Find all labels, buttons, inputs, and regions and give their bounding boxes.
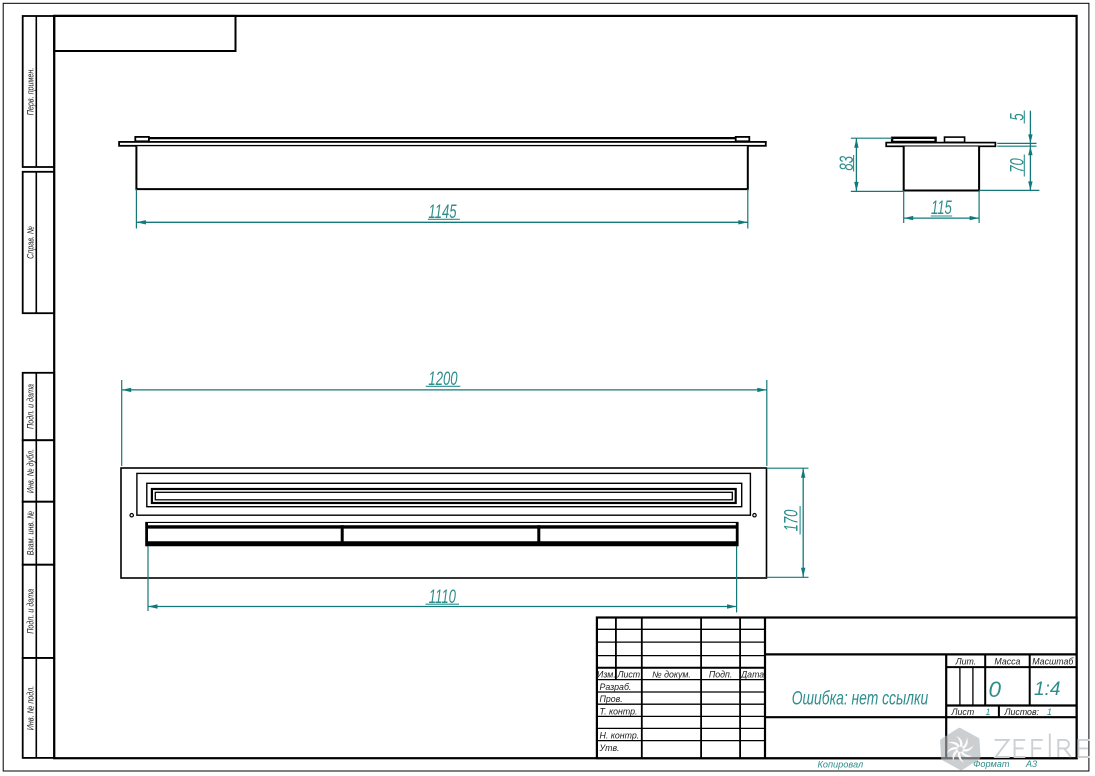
- svg-text:1: 1: [986, 707, 991, 717]
- svg-text:0: 0: [989, 677, 1002, 702]
- svg-text:Формат: Формат: [973, 759, 1010, 769]
- svg-text:Взам. инв. №: Взам. инв. №: [26, 511, 36, 556]
- svg-text:Лист: Лист: [951, 707, 975, 717]
- svg-text:Утв.: Утв.: [599, 743, 620, 753]
- svg-text:115: 115: [931, 198, 953, 219]
- svg-text:Масса: Масса: [994, 656, 1020, 666]
- svg-text:Лист: Лист: [616, 669, 640, 679]
- svg-text:Изм.: Изм.: [597, 669, 616, 679]
- svg-text:Подп. и дата: Подп. и дата: [26, 588, 36, 633]
- svg-text:1:4: 1:4: [1034, 679, 1060, 700]
- svg-text:70: 70: [1007, 158, 1028, 173]
- svg-text:А3: А3: [1025, 759, 1038, 769]
- svg-text:5: 5: [1007, 113, 1028, 121]
- svg-text:Лит.: Лит.: [955, 656, 977, 666]
- svg-text:Разраб.: Разраб.: [600, 682, 632, 692]
- svg-text:83: 83: [837, 156, 858, 171]
- svg-text:Подп. и дата: Подп. и дата: [26, 384, 36, 429]
- svg-text:Н. контр.: Н. контр.: [600, 731, 640, 741]
- svg-text:Перв. примен.: Перв. примен.: [26, 68, 36, 116]
- svg-text:170: 170: [781, 510, 802, 532]
- svg-text:№ докум.: № докум.: [652, 669, 691, 679]
- svg-text:Ошибка: нет ссылки: Ошибка: нет ссылки: [792, 687, 928, 709]
- svg-text:Справ. №: Справ. №: [26, 226, 36, 259]
- svg-text:Листов:: Листов:: [1004, 707, 1040, 717]
- svg-text:Копировал: Копировал: [817, 759, 863, 769]
- svg-text:Пров.: Пров.: [600, 694, 623, 704]
- svg-text:Масштаб: Масштаб: [1032, 656, 1074, 666]
- svg-text:Инв. № дубл.: Инв. № дубл.: [26, 449, 36, 493]
- svg-text:Подп.: Подп.: [709, 669, 732, 679]
- svg-text:Дата: Дата: [740, 669, 764, 679]
- svg-text:Т. контр.: Т. контр.: [600, 706, 638, 716]
- svg-text:1: 1: [1047, 707, 1052, 717]
- svg-text:Инв. № подл.: Инв. № подл.: [26, 686, 36, 731]
